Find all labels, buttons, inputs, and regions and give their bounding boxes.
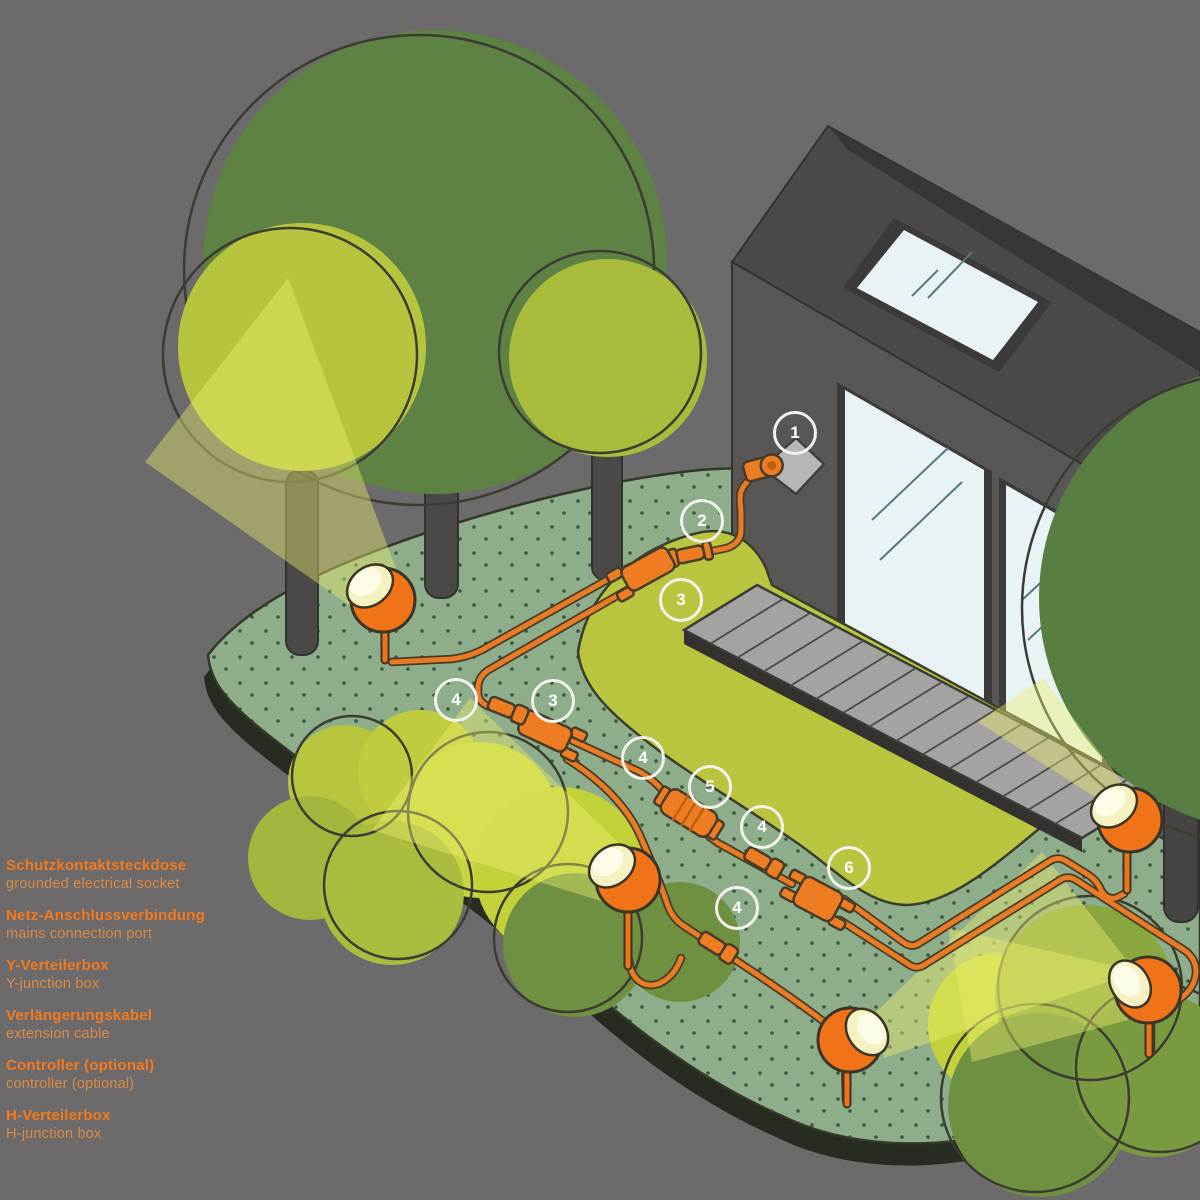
marker-number: 5 <box>705 777 714 797</box>
legend-label-en: controller (optional) <box>6 1075 286 1094</box>
marker-badge-controller: 5 <box>688 765 732 809</box>
legend-label-de: Controller (optional) <box>6 1056 286 1075</box>
garden-lighting-infographic: 1 2 3 3 4 4 4 4 5 6 Schutzkontaktsteckdo… <box>0 0 1200 1200</box>
marker-number: 2 <box>697 511 706 531</box>
marker-badge-ext-cable-1: 4 <box>434 678 478 722</box>
legend-label-de: Y-Verteilerbox <box>6 956 286 975</box>
legend-item-controller: Controller (optional) controller (option… <box>6 1056 286 1106</box>
legend-label-en: H-junction box <box>6 1125 286 1144</box>
legend-item-mains-port: Netz-Anschlussverbindung mains connectio… <box>6 906 286 956</box>
marker-badge-mains-port: 2 <box>680 499 724 543</box>
legend-item-extension-cable: Verlängerungskabel extension cable <box>6 1006 286 1056</box>
marker-number: 3 <box>548 691 557 711</box>
legend-item-y-box: Y-Verteilerbox Y-junction box <box>6 956 286 1006</box>
marker-badge-h-box: 6 <box>827 846 871 890</box>
marker-number: 4 <box>451 690 460 710</box>
legend-label-de: Verlängerungskabel <box>6 1006 286 1025</box>
legend-item-h-box: H-Verteilerbox H-junction box <box>6 1106 286 1156</box>
marker-badge-ext-cable-3: 4 <box>740 805 784 849</box>
legend: Schutzkontaktsteckdose grounded electric… <box>6 856 286 1156</box>
marker-number: 4 <box>757 817 766 837</box>
legend-label-en: grounded electrical socket <box>6 875 286 894</box>
marker-badge-y-box-1: 3 <box>659 578 703 622</box>
marker-badge-socket: 1 <box>773 411 817 455</box>
marker-number: 3 <box>676 590 685 610</box>
legend-item-socket: Schutzkontaktsteckdose grounded electric… <box>6 856 286 906</box>
legend-label-de: Netz-Anschlussverbindung <box>6 906 286 925</box>
trunk-right <box>592 442 622 580</box>
marker-number: 4 <box>638 748 647 768</box>
legend-label-de: H-Verteilerbox <box>6 1106 286 1125</box>
marker-number: 6 <box>844 858 853 878</box>
legend-label-en: Y-junction box <box>6 975 286 994</box>
marker-number: 1 <box>790 423 799 443</box>
marker-number: 4 <box>732 898 741 918</box>
marker-badge-ext-cable-2: 4 <box>621 736 665 780</box>
legend-label-de: Schutzkontaktsteckdose <box>6 856 286 875</box>
marker-badge-ext-cable-4: 4 <box>715 886 759 930</box>
marker-badge-y-box-2: 3 <box>531 679 575 723</box>
legend-label-en: extension cable <box>6 1025 286 1044</box>
legend-label-en: mains connection port <box>6 925 286 944</box>
